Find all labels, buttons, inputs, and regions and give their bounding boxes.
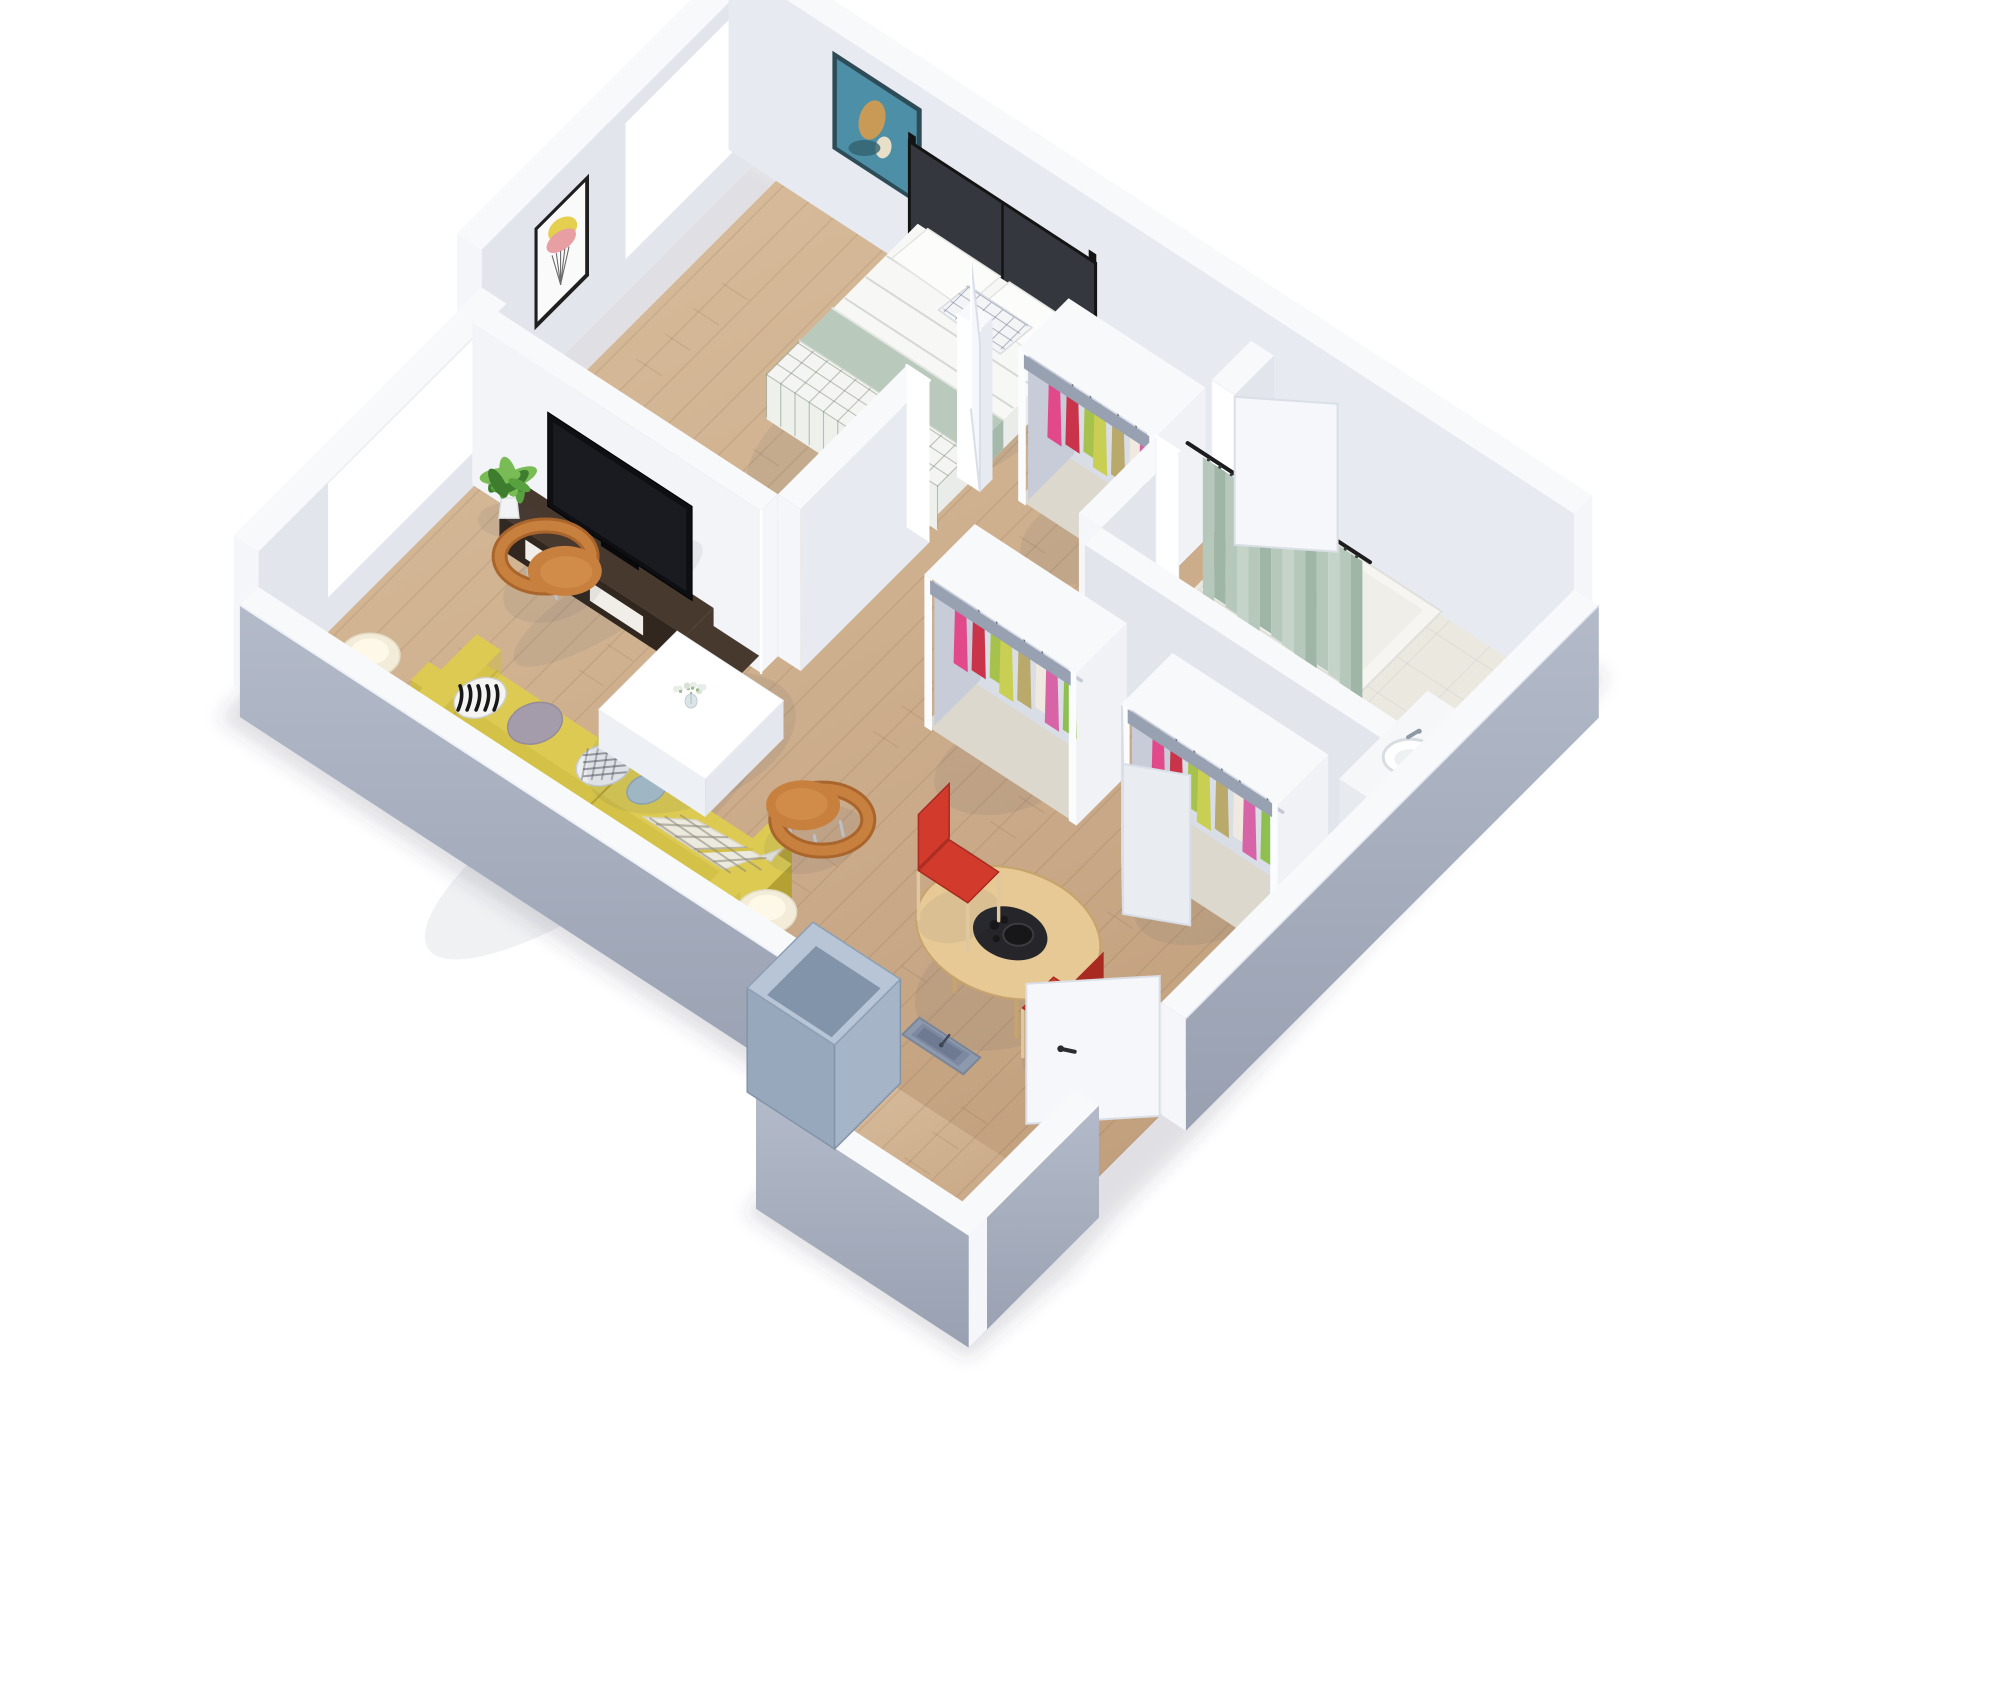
bathroom-door: [1235, 397, 1338, 552]
floor-plan-3d-render: [0, 0, 2000, 1700]
page: [0, 0, 2000, 1700]
